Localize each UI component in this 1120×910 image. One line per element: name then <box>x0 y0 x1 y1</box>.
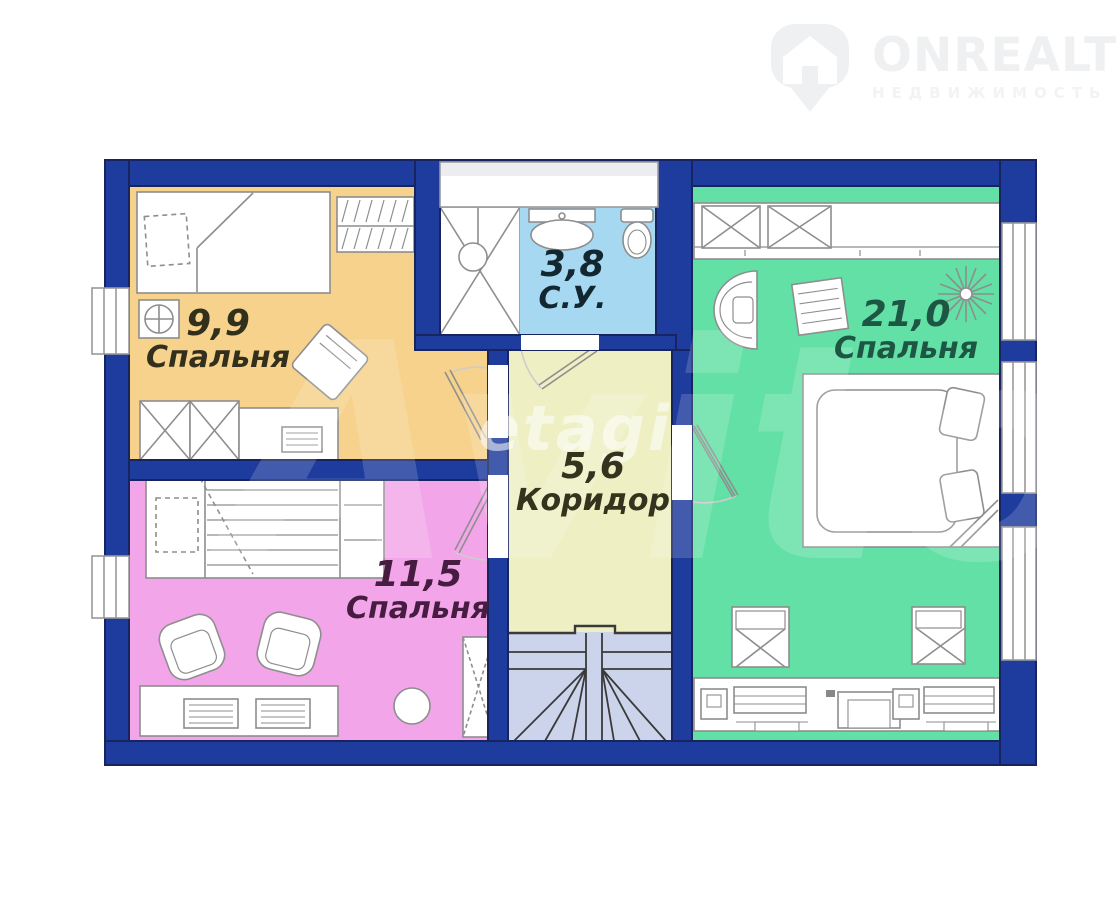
top-niche <box>440 162 658 207</box>
wall-bathroom-right <box>656 160 692 350</box>
wall-left <box>105 160 129 765</box>
window-right-bottom <box>1002 527 1036 660</box>
pillow-icon <box>156 498 198 552</box>
room-name: Спальня <box>328 593 508 624</box>
window-right-top <box>1002 223 1036 340</box>
label-bathroom: 3,8 С.У. <box>505 246 640 315</box>
window-right-middle <box>1002 362 1036 493</box>
real-estate-floor-plan-page: Avito etagi 9,9 Спальня 3,8 С.У. 5,6 Кор… <box>0 0 1120 910</box>
wall-corridor-right <box>672 350 692 741</box>
wardrobe-shelf-icon <box>694 203 1000 259</box>
double-bed-icon <box>803 374 1000 547</box>
stool-icon <box>394 688 430 724</box>
room-area-value: 5,6 <box>508 448 678 485</box>
brand-tagline: НЕДВИЖИМОСТЬ <box>872 84 1117 102</box>
brand-name: ONREALT <box>872 32 1117 79</box>
window-left-top <box>92 288 129 354</box>
room-area-value: 9,9 <box>128 305 308 342</box>
room-name: Коридор <box>508 485 678 516</box>
room-area-value: 11,5 <box>328 556 508 593</box>
room-stairwell <box>508 632 672 741</box>
dresser-icon <box>140 401 239 460</box>
radiator-icon <box>337 197 414 252</box>
stool-chair-icon <box>732 607 789 667</box>
label-bedroom-top-left: 9,9 Спальня <box>128 305 308 374</box>
desk-icon <box>239 408 338 460</box>
window-left-bottom <box>92 556 129 618</box>
room-area-value: 21,0 <box>816 296 996 333</box>
wall-shower-divider <box>415 160 440 350</box>
single-bed-icon <box>137 192 330 293</box>
wall-bedrooms-divider <box>129 460 488 480</box>
desk-icon <box>140 686 338 736</box>
door-opening-bedroom-top-left <box>488 365 508 438</box>
room-area-value: 3,8 <box>505 246 640 283</box>
label-corridor: 5,6 Коридор <box>508 448 678 517</box>
door-opening-bedroom-bottom-left <box>488 475 508 558</box>
pillow-icon <box>144 214 189 267</box>
logo-text: ONREALT НЕДВИЖИМОСТЬ <box>872 20 1117 102</box>
room-name: Спальня <box>816 333 996 364</box>
location-pin-house-icon <box>763 20 858 115</box>
desk-workstation-icon <box>694 678 1000 731</box>
door-opening-bathroom <box>521 335 599 350</box>
label-bedroom-bottom-left: 11,5 Спальня <box>328 556 508 625</box>
wall-bottom <box>105 741 1036 765</box>
room-name: Спальня <box>128 342 308 373</box>
stool-chair-icon <box>912 607 965 664</box>
onrealt-logo: ONREALT НЕДВИЖИМОСТЬ <box>763 20 1117 115</box>
label-bedroom-right: 21,0 Спальня <box>816 296 996 365</box>
pillow-icon <box>939 469 985 523</box>
room-name: С.У. <box>505 283 640 314</box>
